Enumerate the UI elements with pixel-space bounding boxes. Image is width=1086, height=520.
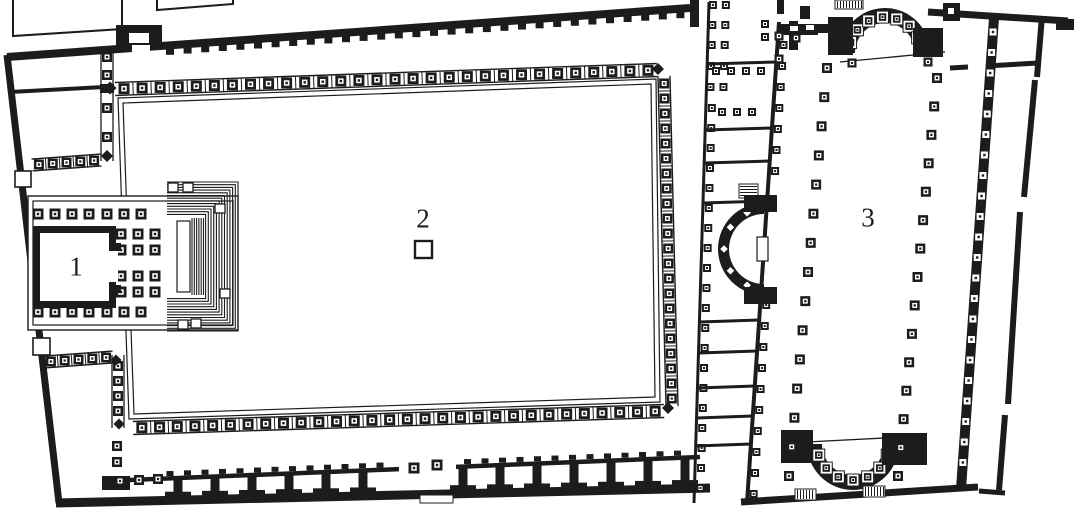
- label-altar-court: 2: [416, 205, 430, 232]
- label-temple: 1: [69, 253, 83, 280]
- floor-plan: 1 2 3: [0, 0, 1086, 520]
- basilica-hall: [741, 0, 1038, 502]
- floor-plan-svg: [0, 0, 1086, 520]
- label-basilica: 3: [861, 204, 875, 231]
- annex-strip: [690, 0, 818, 503]
- altar: [415, 241, 432, 258]
